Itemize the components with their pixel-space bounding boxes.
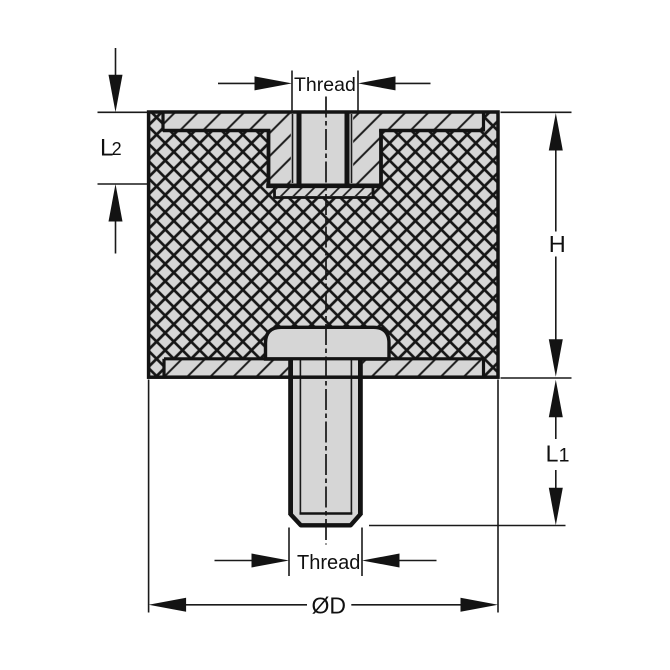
svg-text:H: H: [549, 231, 566, 257]
svg-text:L: L: [546, 440, 559, 466]
svg-text:2: 2: [112, 139, 122, 159]
svg-text:1: 1: [559, 445, 570, 467]
svg-text:Thread: Thread: [297, 552, 360, 574]
svg-text:Thread: Thread: [294, 74, 356, 96]
svg-text:ØD: ØD: [312, 592, 347, 618]
